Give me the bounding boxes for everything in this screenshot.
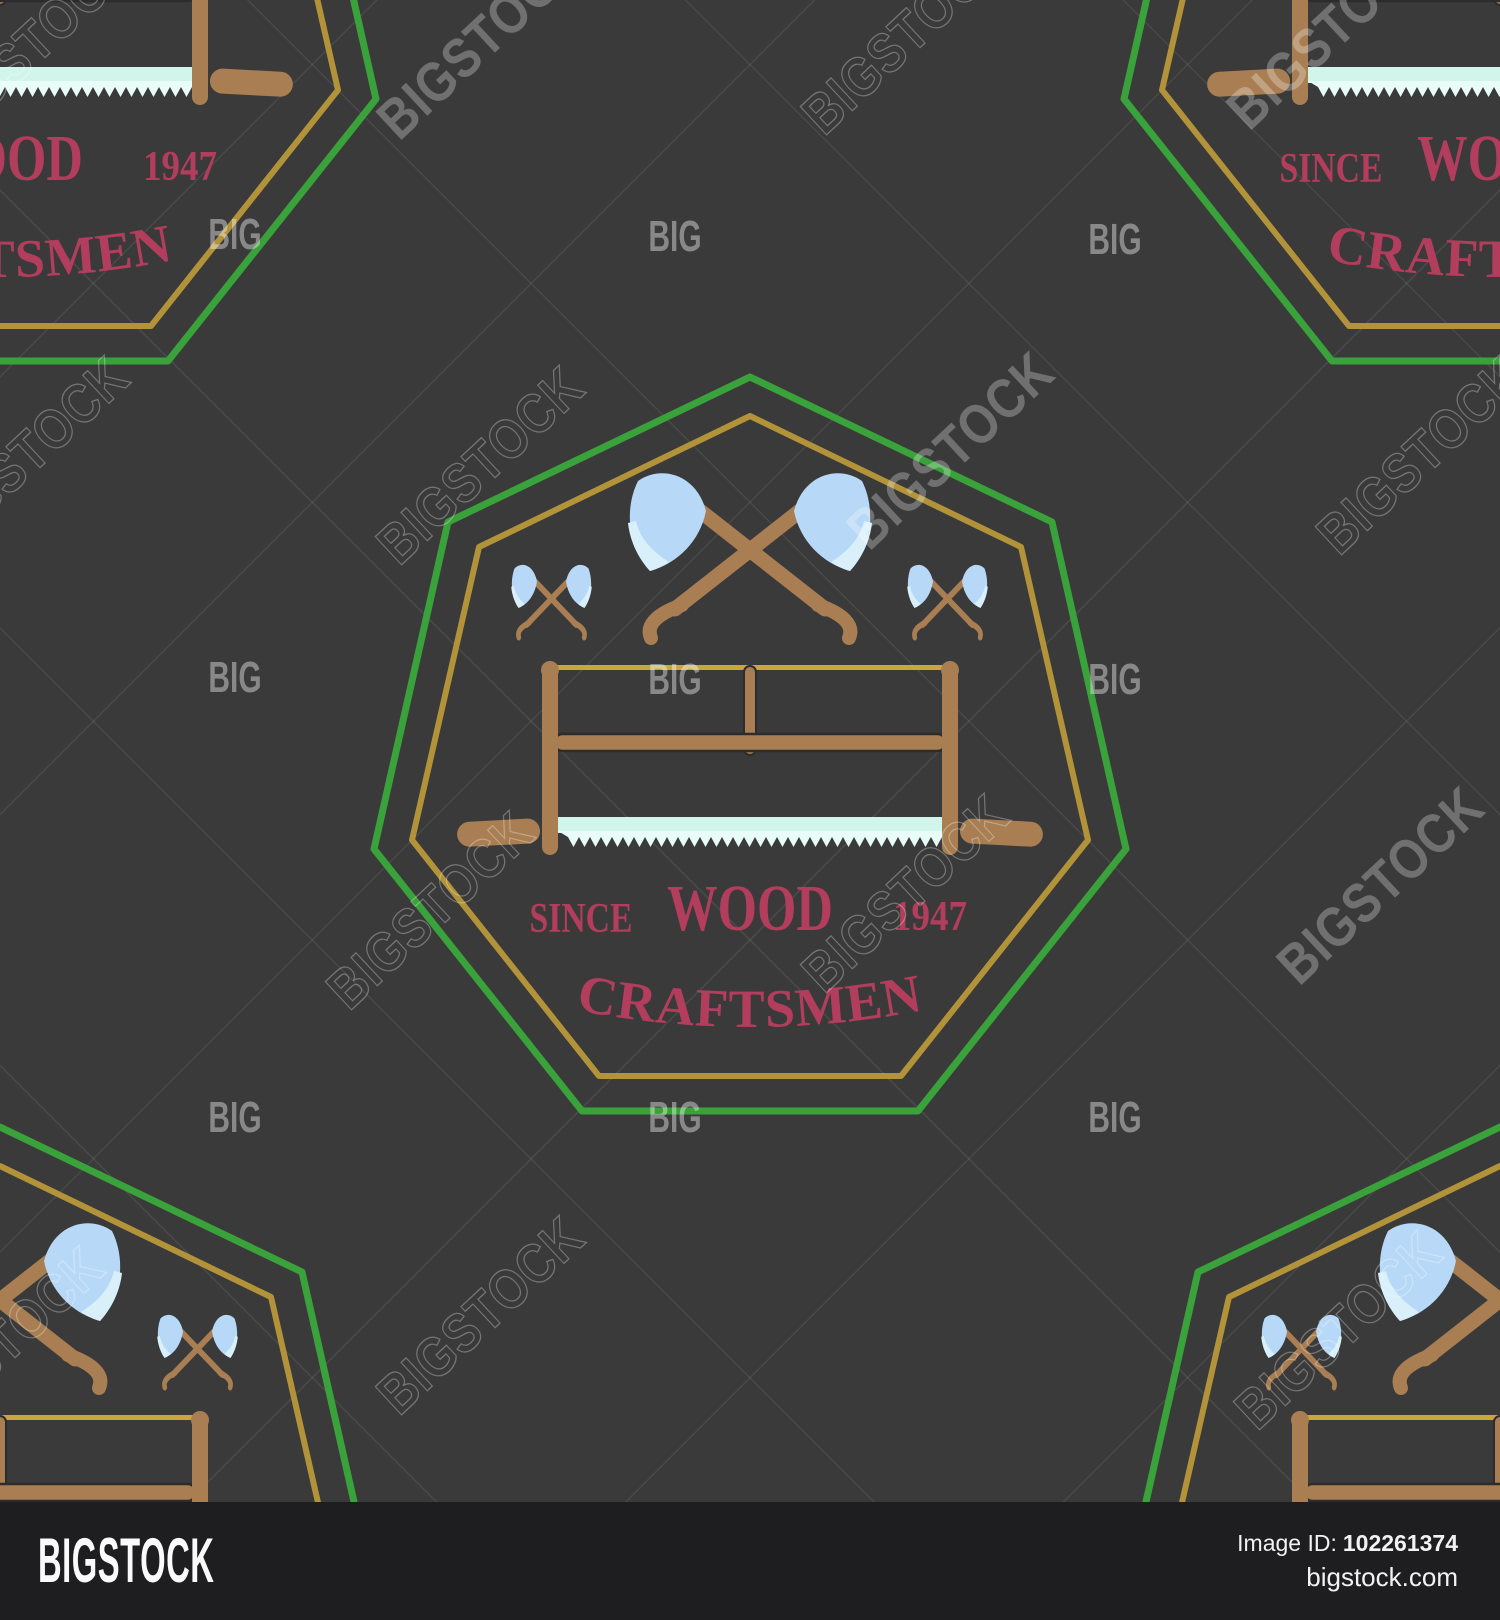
badge-instance-bottom-left [0,1127,376,1502]
image-id-line: Image ID:102261374 [1237,1530,1458,1556]
footer-bar: BIGSTOCK Image ID:102261374 bigstock.com [0,1502,1500,1620]
image-id-label: Image ID: [1237,1530,1337,1556]
footer-image-info: Image ID:102261374 bigstock.com [1237,1530,1458,1592]
stock-image-preview: SINCE WOOD 1947 CRAFTSMEN BIG BIG [0,0,1500,1620]
badge-instance-top-left [0,0,376,361]
badge-instance-top-right [1124,0,1500,361]
image-id-value: 102261374 [1343,1530,1458,1556]
badge-instance-bottom-right [1124,1127,1500,1502]
badge-pattern-svg: SINCE WOOD 1947 CRAFTSMEN [0,0,1500,1502]
bigstock-site-url: bigstock.com [1237,1562,1458,1592]
badge-instance-center [374,377,1126,1111]
bigstock-logo: BIGSTOCK [38,1525,214,1597]
seamless-badge-pattern: SINCE WOOD 1947 CRAFTSMEN BIG BIG [0,0,1500,1502]
